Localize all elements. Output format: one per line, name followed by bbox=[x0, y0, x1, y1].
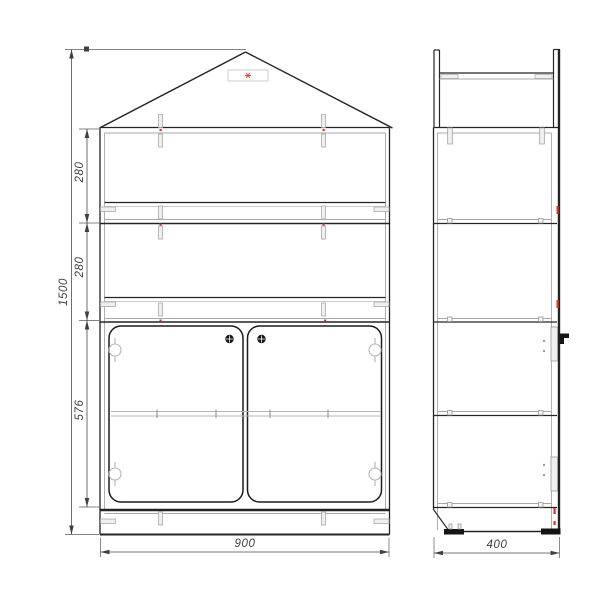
side-view bbox=[434, 50, 570, 535]
cam-dowel-marks bbox=[101, 115, 390, 526]
hinge-icon bbox=[109, 338, 121, 362]
gable-posts bbox=[434, 50, 560, 129]
dimension-arrows bbox=[69, 47, 559, 556]
top-cross-board bbox=[440, 73, 554, 79]
dimension-annotations bbox=[65, 50, 560, 559]
foot-block bbox=[541, 529, 561, 535]
peak-label-plate bbox=[228, 70, 268, 81]
side-base bbox=[434, 510, 561, 535]
carcass-inner-lines bbox=[105, 133, 386, 514]
front-view bbox=[100, 52, 393, 535]
door-left[interactable] bbox=[109, 326, 243, 502]
hinge-icon bbox=[369, 338, 381, 362]
dim-label-depth: 400 bbox=[487, 539, 508, 551]
side-body-outline bbox=[434, 50, 561, 533]
doors bbox=[109, 326, 382, 502]
dim-label-total-height: 1500 bbox=[58, 278, 70, 306]
dim-label-door-section: 576 bbox=[74, 400, 86, 421]
carcass-outline bbox=[100, 128, 390, 535]
dim-label-width: 900 bbox=[235, 538, 256, 550]
hinge-icon bbox=[109, 462, 121, 486]
hidden-shelf-line bbox=[111, 410, 380, 419]
gable-roof bbox=[100, 52, 393, 128]
hinges bbox=[109, 338, 381, 486]
hinge-icon bbox=[369, 462, 381, 486]
door-knob-icon[interactable] bbox=[257, 335, 265, 343]
foot-block bbox=[444, 529, 464, 535]
extension-lines bbox=[65, 50, 560, 559]
red-fastener-marks bbox=[160, 129, 327, 322]
hinge-plate bbox=[551, 457, 558, 491]
door-right[interactable] bbox=[248, 326, 382, 502]
door-knobs bbox=[225, 335, 265, 343]
datum-square-mark bbox=[84, 47, 89, 52]
side-shelf-boards bbox=[434, 219, 558, 508]
side-hinge-plates bbox=[543, 327, 558, 491]
door-knob-icon[interactable] bbox=[225, 335, 233, 343]
technical-drawing-canvas: 1500 280 280 576 900 400 bbox=[0, 0, 608, 608]
knob-side-icon[interactable] bbox=[560, 334, 570, 345]
assembly-drawing: 1500 280 280 576 900 400 bbox=[0, 0, 608, 608]
dim-label-middle-section: 280 bbox=[74, 257, 86, 279]
dim-label-top-section: 280 bbox=[74, 162, 86, 184]
hinge-plate bbox=[551, 327, 558, 361]
shelf-lines bbox=[100, 203, 390, 511]
